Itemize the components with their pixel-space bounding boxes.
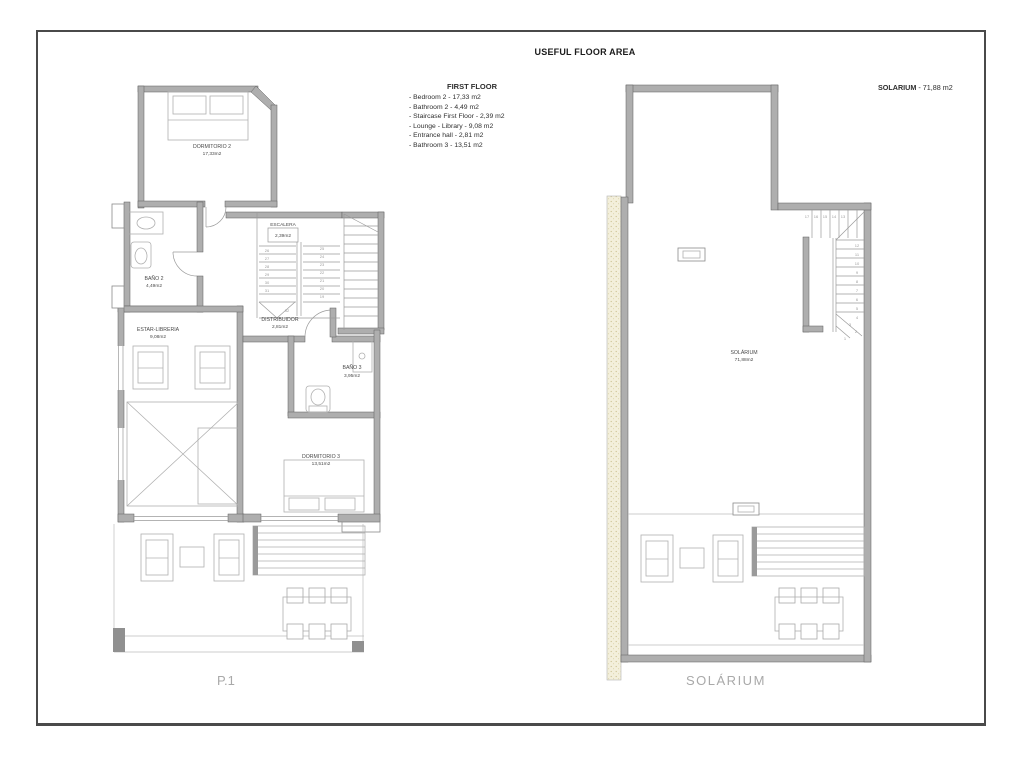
- stair-landing-number: 32: [285, 308, 290, 313]
- caption-p1: P.1: [217, 673, 235, 688]
- skylight-marker-top: [678, 248, 705, 261]
- stair-step-number: 15: [823, 214, 828, 219]
- sofa-icons-estar: [133, 346, 230, 389]
- stair-step-number: 29: [265, 272, 270, 277]
- room-area-bano-3: 3,95m2: [344, 373, 360, 379]
- first-floor-plan: 26 27 28 29 30 31 25 24 23 22 21 20 19 3…: [112, 86, 384, 652]
- stair-step-number: 1: [844, 336, 847, 341]
- room-label-estar-libreria: ESTAR-LIBRERIA: [137, 327, 180, 333]
- stair-step-number: 11: [855, 252, 860, 257]
- stair-step-number: 17: [805, 214, 810, 219]
- room-area-dormitorio-2: 17,33m2: [203, 151, 222, 157]
- stair-step-number: 19: [320, 294, 325, 299]
- room-label-bano-2: BAÑO 2: [144, 275, 163, 282]
- room-label-dormitorio-3: DORMITORIO 3: [302, 454, 340, 460]
- room-label-distribuidor: DISTRIBUIDOR: [261, 317, 298, 323]
- terrace-outline: [113, 524, 364, 652]
- pergola-icon-solarium: [752, 527, 864, 576]
- stair-step-number: 14: [832, 214, 837, 219]
- room-area-estar-libreria: 9,08m2: [150, 334, 166, 340]
- stair-step-number: 2: [855, 329, 858, 334]
- stair-step-number: 6: [856, 297, 859, 302]
- stair-step-number: 9: [856, 270, 859, 275]
- dining-set-icon-solarium: [775, 588, 843, 639]
- balcony-hatch-strip: [607, 196, 621, 680]
- floor-plans-canvas: 26 27 28 29 30 31 25 24 23 22 21 20 19 3…: [0, 0, 1024, 768]
- stair-step-number: 20: [320, 286, 325, 291]
- stair-step-number: 30: [265, 280, 270, 285]
- room-label-bano-3: BAÑO 3: [342, 364, 361, 371]
- stair-step-number: 23: [320, 262, 325, 267]
- room-area-distribuidor: 2,81m2: [272, 324, 288, 330]
- caption-solarium: SOLÁRIUM: [686, 673, 766, 688]
- stair-step-number: 24: [320, 254, 325, 259]
- toilet-icon-bano-3: [306, 340, 372, 412]
- secondary-staircase: [344, 214, 378, 330]
- stair-step-number: 21: [320, 278, 325, 283]
- bed-icon-dormitorio-3: [284, 460, 364, 512]
- stair-step-number: 25: [320, 246, 325, 251]
- bed-icon-dormitorio-2: [168, 92, 248, 140]
- stair-step-number: 28: [265, 264, 270, 269]
- rug-icon-estar: [127, 402, 239, 506]
- room-label-solarium: SOLÁRIUM: [730, 349, 757, 356]
- stair-step-number: 12: [855, 243, 860, 248]
- armchair-icons-terrace: [141, 534, 244, 581]
- stair-step-number: 16: [814, 214, 819, 219]
- dining-set-icon-terrace: [283, 588, 351, 639]
- stair-step-number: 26: [265, 248, 270, 253]
- room-area-escalera: 2,39m2: [275, 233, 291, 239]
- room-area-dormitorio-3: 13,51m2: [312, 461, 331, 467]
- room-area-bano-2: 4,49m2: [146, 283, 162, 289]
- skylight-marker-bottom: [733, 503, 759, 515]
- armchair-icons-solarium: [641, 535, 743, 582]
- stair-step-number: 27: [265, 256, 270, 261]
- stair-step-number: 3: [849, 322, 852, 327]
- room-label-escalera: ESCALERA: [270, 222, 296, 228]
- stair-step-number: 13: [841, 214, 846, 219]
- stair-step-number: 8: [856, 279, 859, 284]
- stair-step-number: 31: [265, 288, 270, 293]
- stair-step-number: 22: [320, 270, 325, 275]
- room-area-solarium: 71,88m2: [735, 357, 754, 363]
- stair-step-number: 7: [856, 288, 859, 293]
- bathroom-fixtures-bano-2: [129, 212, 163, 268]
- p1-windows: [118, 346, 339, 521]
- stair-step-number: 4: [856, 315, 859, 320]
- stair-step-number: 5: [856, 306, 859, 311]
- solarium-walls: [621, 85, 871, 662]
- pergola-icon-terrace: [253, 526, 365, 575]
- solarium-plan: 17 16 15 14 13 12 11 10 9 8 7 6 5 4 3 2 …: [607, 85, 871, 680]
- stair-step-number: 10: [855, 261, 860, 266]
- room-label-dormitorio-2: DORMITORIO 2: [193, 144, 231, 150]
